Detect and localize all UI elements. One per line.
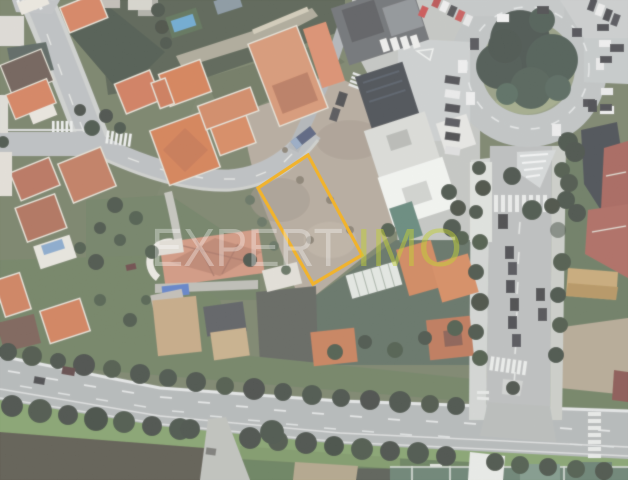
svg-text:EXPERT: EXPERT — [151, 218, 343, 278]
svg-text:IMO: IMO — [356, 218, 462, 278]
